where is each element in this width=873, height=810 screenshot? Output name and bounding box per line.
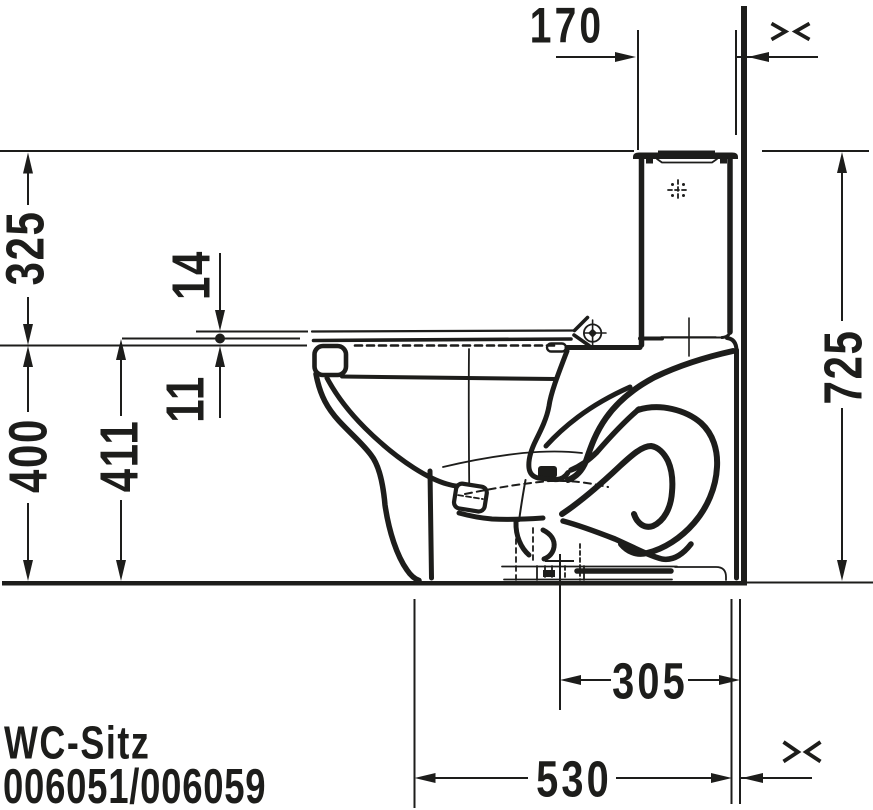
svg-text:530: 530 <box>536 751 612 808</box>
svg-text:170: 170 <box>530 0 604 54</box>
svg-text:006051/006059: 006051/006059 <box>3 760 266 810</box>
svg-text:725: 725 <box>814 330 873 405</box>
svg-text:14: 14 <box>162 250 222 300</box>
svg-text:305: 305 <box>612 653 688 710</box>
svg-text:325: 325 <box>0 211 56 286</box>
svg-text:11: 11 <box>156 375 216 423</box>
svg-text:411: 411 <box>90 420 150 493</box>
svg-text:400: 400 <box>0 418 59 493</box>
